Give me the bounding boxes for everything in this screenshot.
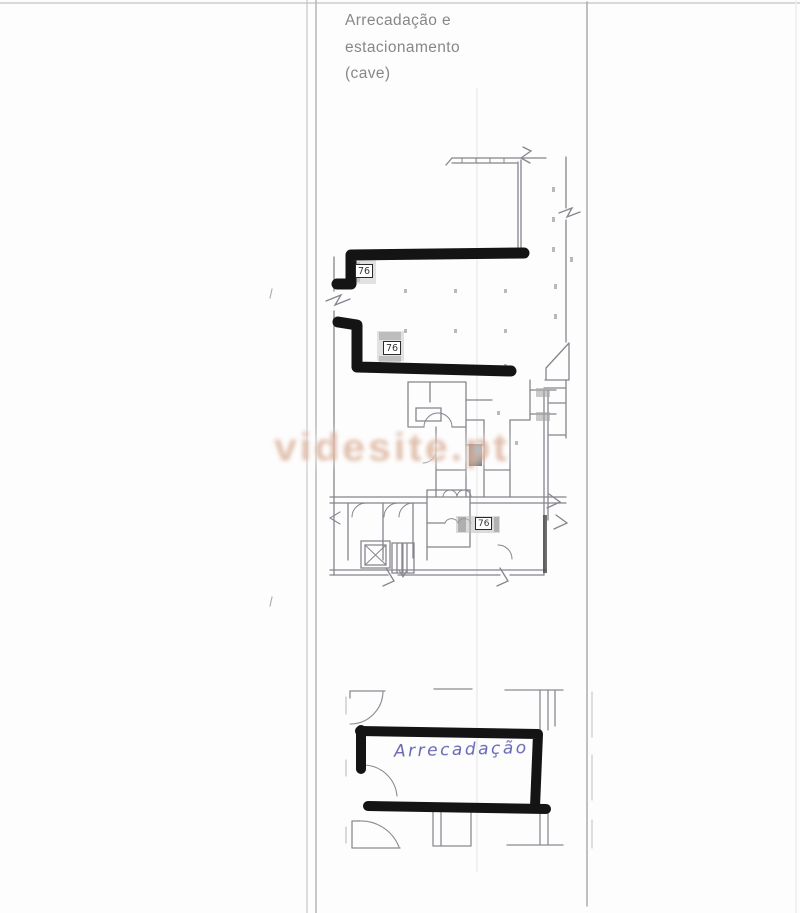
- room-label-76-2: 76: [383, 341, 401, 355]
- room-label-76-3: 76: [475, 517, 492, 530]
- plan-title: Arrecadação e estacionamento (cave): [345, 8, 575, 88]
- floorplan-linework: [0, 0, 800, 913]
- marker-annotation-upper-2: [338, 322, 511, 371]
- room-label-76-1: 76: [355, 264, 373, 278]
- lower-plan-linework: [346, 689, 592, 848]
- handwritten-room-label: Arrecadação: [394, 738, 524, 761]
- scanned-floorplan-page: Arrecadação e estacionamento (cave) vide…: [0, 0, 800, 913]
- page-rules: [0, 0, 800, 913]
- plan-title-line-2: estacionamento: [345, 35, 575, 62]
- upper-plan-shading: [350, 260, 550, 573]
- plan-title-line-1: Arrecadação e: [345, 8, 575, 35]
- plan-title-line-3: (cave): [345, 61, 575, 88]
